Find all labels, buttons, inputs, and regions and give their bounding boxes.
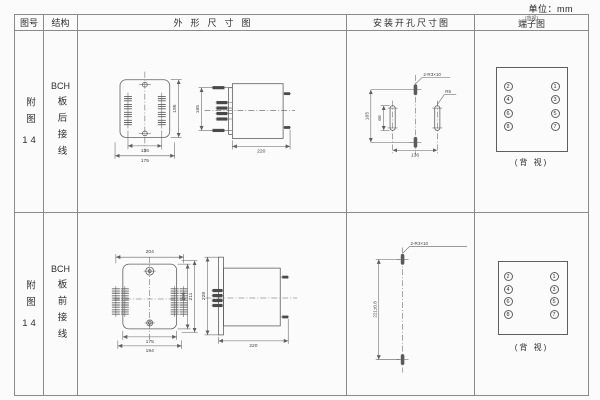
terminal-pin: 3 — [551, 95, 560, 104]
header-terminal: (背视) 端子图 — [475, 15, 588, 31]
svg-text:220: 220 — [257, 148, 266, 154]
terminal-pin: 1 — [550, 272, 559, 281]
svg-text:220: 220 — [249, 343, 258, 349]
header-structure: 结构 — [44, 15, 78, 31]
svg-text:2-R3×10: 2-R3×10 — [411, 241, 429, 246]
terminal-pin: 7 — [550, 310, 559, 319]
svg-text:66: 66 — [377, 115, 383, 121]
outline-drawing-front-wiring: 204 — [78, 213, 346, 395]
terminal-pin: 1 — [551, 82, 560, 91]
svg-text:136: 136 — [141, 148, 150, 154]
outline-drawing-rear-wiring: 136 175 195 — [78, 31, 346, 212]
header-install: 安装开孔尺寸图 — [347, 15, 475, 31]
svg-text:195: 195 — [181, 292, 187, 301]
manual-page: 单位：mm 图号 结构 外形尺寸图 安装开孔尺寸图 (背视) 端子图 附图 14… — [0, 0, 600, 400]
terminal-pin: 4 — [504, 285, 513, 294]
svg-text:165: 165 — [195, 105, 201, 114]
terminal-pin: 5 — [550, 297, 559, 306]
install-drawing-rear-wiring: 165 66 136 2-R3×10 R5 — [347, 31, 474, 212]
terminal-pin: 3 — [550, 285, 559, 294]
svg-text:165: 165 — [364, 112, 370, 121]
terminal-cell-row2: 2 4 6 8 1 3 5 7 (背 视) — [475, 213, 588, 395]
outline-cell-row1: 136 175 195 — [78, 31, 347, 213]
structure-cell-row2: BCH 板前接线 — [44, 213, 78, 395]
figure-number: 14 — [19, 135, 39, 146]
header-terminal-label: 端子图 — [518, 20, 545, 29]
install-cell-row1: 165 66 136 2-R3×10 R5 — [347, 31, 475, 213]
install-cell-row2: 221±0.8 2-R3×10 — [347, 213, 475, 395]
svg-text:136: 136 — [411, 153, 420, 159]
figure-label: 附图 — [22, 280, 36, 313]
svg-text:221±0.8: 221±0.8 — [372, 301, 377, 318]
terminal-pin: 4 — [504, 95, 513, 104]
figure-cell-row2: 附图 14 — [15, 213, 44, 395]
terminal-pin: 2 — [504, 272, 513, 281]
svg-text:2-R3×10: 2-R3×10 — [423, 72, 441, 77]
svg-text:175: 175 — [146, 339, 155, 345]
terminal-caption: (背 视) — [475, 342, 588, 353]
structure-cell-row1: BCH 板后接线 — [44, 31, 78, 213]
svg-text:R5: R5 — [445, 89, 451, 94]
figure-label: 附图 — [22, 97, 36, 130]
svg-text:228: 228 — [201, 292, 207, 301]
header-figure: 图号 — [15, 15, 44, 31]
terminal-pin: 8 — [504, 310, 513, 319]
dimension-table: 图号 结构 外形尺寸图 安装开孔尺寸图 (背视) 端子图 附图 14 BCH 板… — [14, 14, 589, 396]
terminal-pin: 8 — [504, 122, 513, 131]
svg-text:175: 175 — [141, 158, 150, 164]
terminal-cell-row1: 2 4 6 8 1 3 5 7 (背 视) — [475, 31, 588, 213]
svg-text:211: 211 — [188, 292, 194, 300]
svg-text:194: 194 — [146, 348, 155, 354]
figure-number: 14 — [19, 318, 39, 329]
header-outline: 外形尺寸图 — [78, 15, 347, 31]
terminal-pin: 6 — [504, 297, 513, 306]
svg-text:204: 204 — [146, 249, 155, 255]
outline-cell-row2: 204 — [78, 213, 347, 395]
terminal-caption: (背 视) — [475, 157, 588, 168]
terminal-pin: 5 — [551, 109, 560, 118]
figure-cell-row1: 附图 14 — [15, 31, 44, 213]
structure-text: 板后接线 — [54, 96, 68, 162]
terminal-pin: 2 — [504, 82, 513, 91]
install-drawing-front-wiring: 221±0.8 2-R3×10 — [347, 213, 474, 395]
structure-prefix: BCH — [51, 81, 70, 91]
structure-text: 板前接线 — [54, 279, 68, 345]
terminal-pin: 6 — [504, 109, 513, 118]
svg-text:195: 195 — [172, 104, 178, 113]
terminal-pin: 7 — [551, 122, 560, 131]
structure-prefix: BCH — [51, 264, 70, 274]
